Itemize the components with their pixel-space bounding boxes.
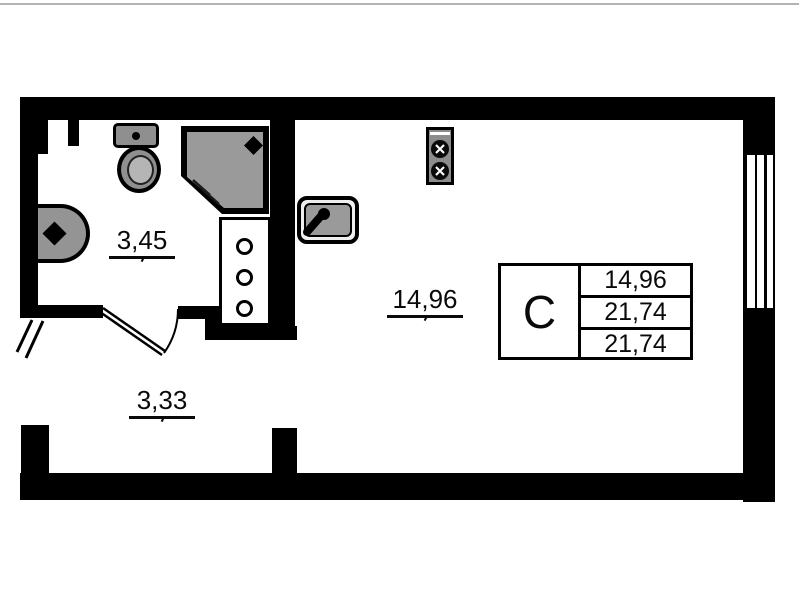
legend-value-row: 21,74 (581, 298, 690, 330)
legend-value-row: 21,74 (581, 330, 690, 359)
legend-unit-type: С (501, 266, 581, 357)
room-label-living: 14,96 (387, 286, 463, 318)
room-label-hallway: 3,33 (129, 387, 195, 419)
room-label-bathroom: 3,45 (109, 227, 175, 259)
legend-values: 14,96 21,74 21,74 (581, 266, 690, 357)
bathroom-door (100, 308, 178, 355)
legend-table: С 14,96 21,74 21,74 (498, 263, 693, 360)
floor-plan: 3,45 3,33 14,96 С 14,96 21,74 21,74 (0, 0, 799, 600)
door-swing-arc (164, 309, 178, 353)
entrance-door (17, 320, 43, 358)
legend-value-row: 14,96 (581, 266, 690, 298)
